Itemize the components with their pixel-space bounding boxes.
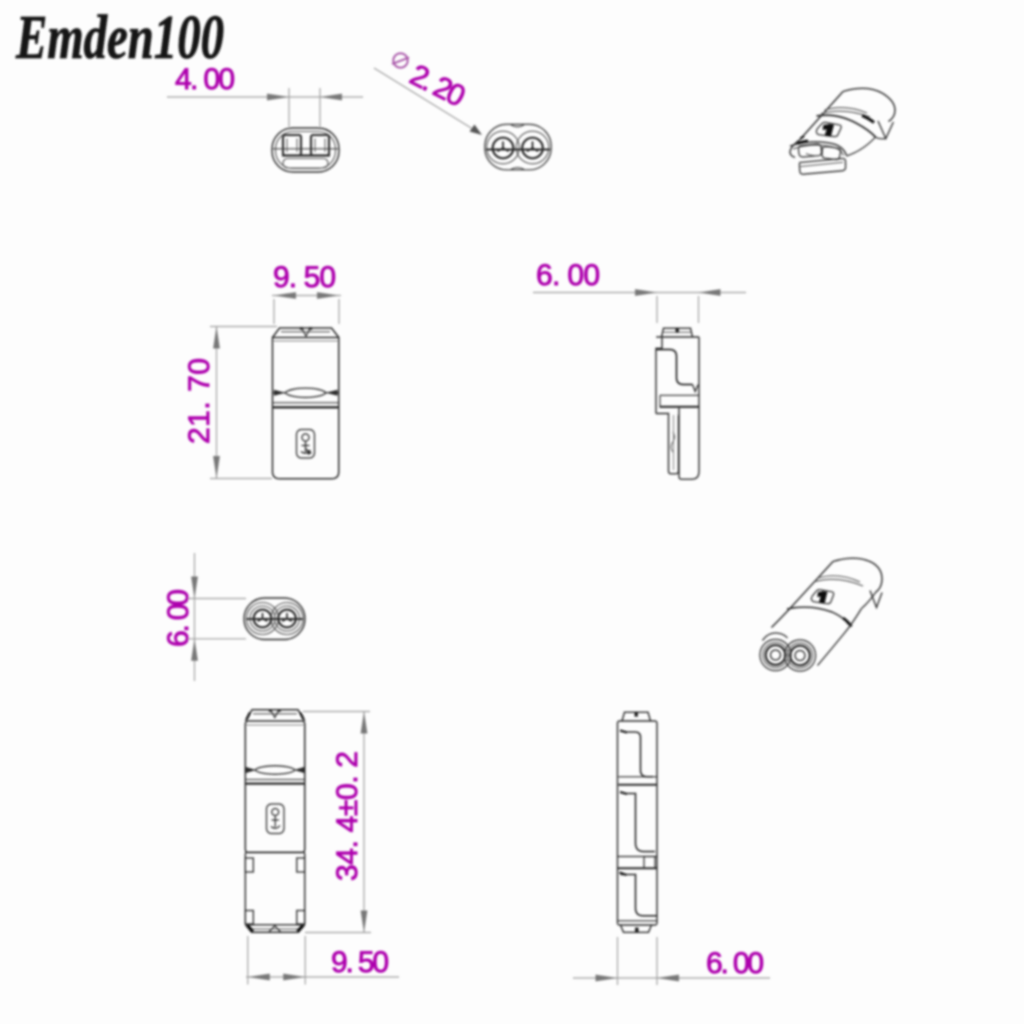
- svg-text:6. 00: 6. 00: [706, 947, 764, 980]
- svg-text:9. 50: 9. 50: [331, 946, 389, 979]
- svg-text:Emden100: Emden100: [15, 4, 224, 72]
- svg-text:6. 00: 6. 00: [162, 589, 195, 647]
- svg-text:9. 50: 9. 50: [273, 261, 336, 294]
- svg-text:2. 20: 2. 20: [405, 58, 471, 113]
- svg-text:6. 00: 6. 00: [536, 259, 600, 292]
- svg-text:21. 70: 21. 70: [183, 358, 216, 444]
- svg-text:4. 00: 4. 00: [175, 63, 235, 96]
- svg-text:34. 4±0. 2: 34. 4±0. 2: [331, 751, 364, 881]
